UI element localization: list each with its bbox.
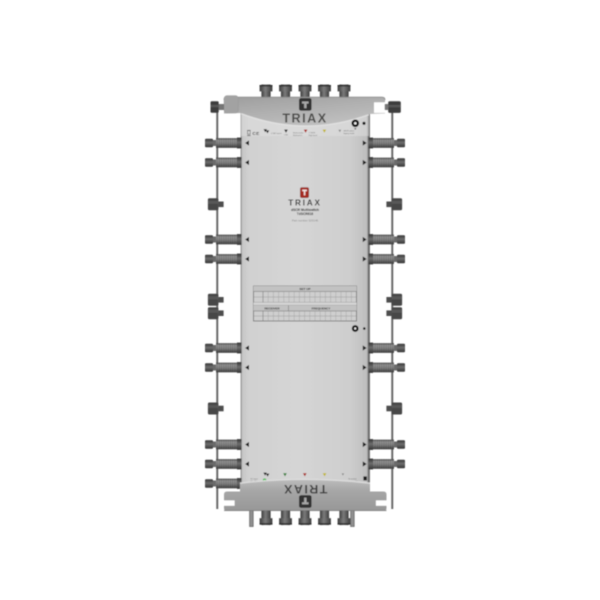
svg-text:TRIAX: TRIAX (282, 112, 327, 126)
svg-text:CE: CE (252, 131, 260, 137)
svg-text:4 SAT inputs: 4 SAT inputs (271, 132, 282, 135)
svg-text:TdSCR616: TdSCR616 (297, 212, 314, 216)
svg-text:RECEIVER: RECEIVER (264, 307, 280, 311)
svg-text:SET UP: SET UP (299, 287, 310, 291)
svg-text:TRIAX: TRIAX (283, 482, 328, 496)
svg-text:legacy mode: legacy mode (344, 133, 355, 135)
svg-text:FREQUENCY: FREQUENCY (312, 307, 331, 311)
svg-text:Part number 325146: Part number 325146 (292, 218, 319, 222)
svg-text:Multiswitch: Multiswitch (293, 134, 302, 137)
svg-text:TRIAX: TRIAX (288, 198, 322, 207)
svg-text:High band: High band (309, 135, 318, 137)
